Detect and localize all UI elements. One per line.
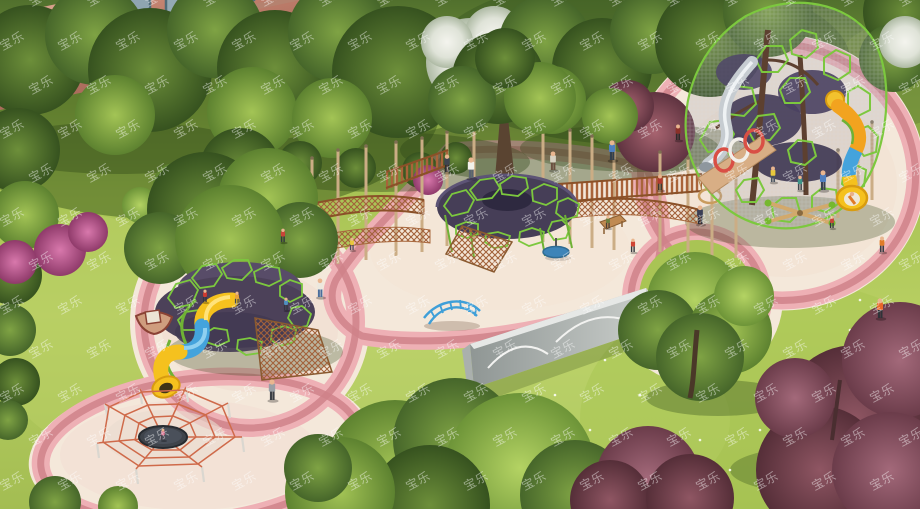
daisy [759, 429, 762, 432]
pole-cap [590, 134, 594, 138]
tree [755, 358, 835, 438]
tree [714, 266, 774, 326]
daisy [699, 439, 702, 442]
pole-cap [658, 150, 662, 154]
tree [656, 313, 744, 401]
daisy [554, 394, 557, 397]
daisy [859, 299, 862, 302]
pole-cap [420, 136, 424, 140]
daisy [729, 469, 732, 472]
pole-cap [310, 156, 314, 160]
daisy [589, 429, 592, 432]
tree [284, 434, 352, 502]
daisy [604, 359, 607, 362]
pole-cap [336, 148, 340, 152]
pole-cap [568, 128, 572, 132]
tree [336, 148, 376, 188]
pole-cap [686, 156, 690, 160]
pole-cap [364, 144, 368, 148]
tree [68, 212, 108, 252]
scene-svg [0, 0, 920, 509]
playground-render: 宝乐宝乐宝乐宝乐宝乐宝乐宝乐宝乐宝乐宝乐宝乐宝乐宝乐宝乐宝乐宝乐宝乐宝乐宝乐宝乐… [0, 0, 920, 509]
daisy [639, 394, 642, 397]
tree [75, 75, 155, 155]
pole-cap [394, 140, 398, 144]
